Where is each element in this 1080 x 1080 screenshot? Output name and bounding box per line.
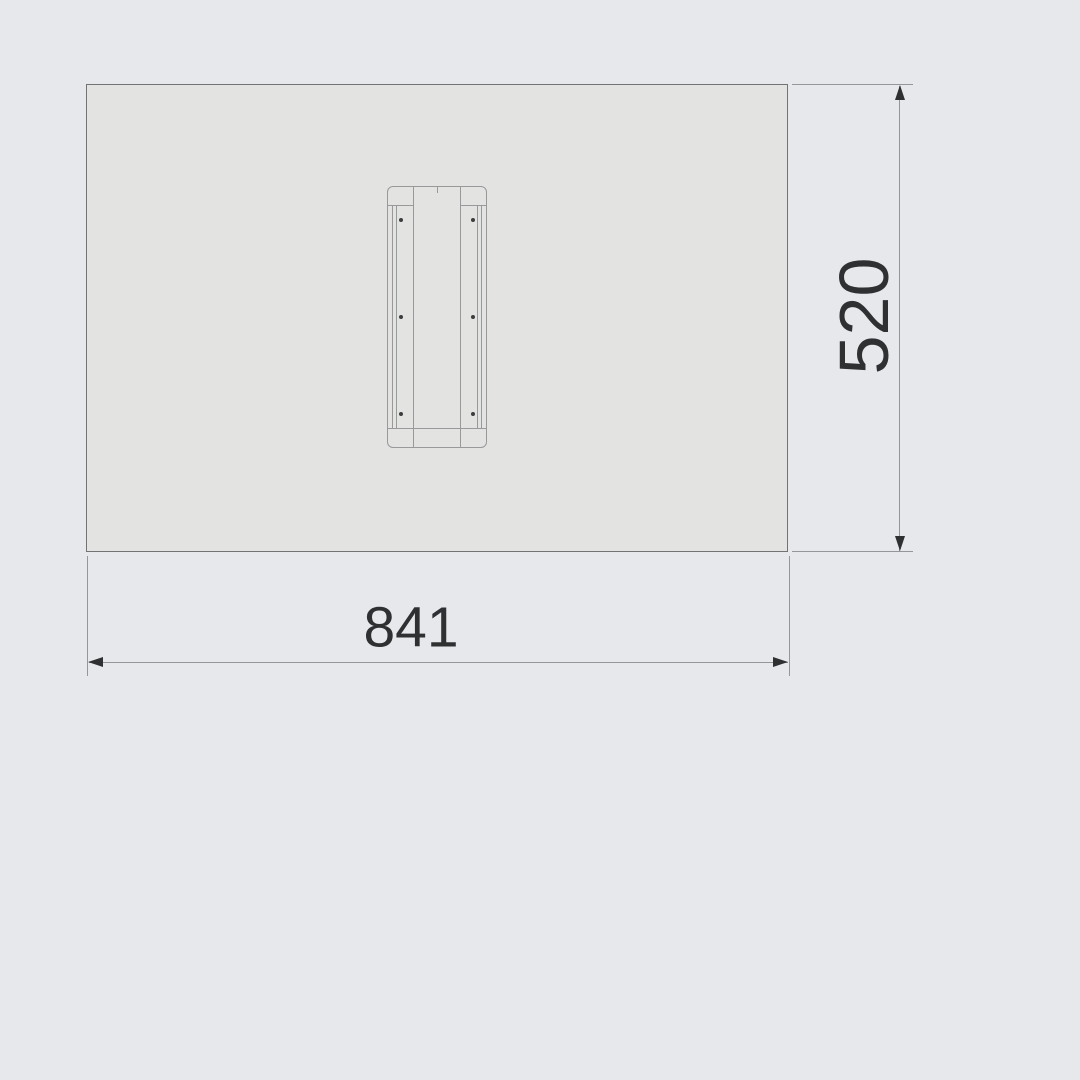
arrow-left-icon (88, 657, 103, 667)
width-ext-line-right (789, 556, 790, 676)
screw-hole-dot (399, 315, 403, 319)
height-ext-line-bottom (792, 551, 913, 552)
screw-hole-dot (471, 315, 475, 319)
technical-drawing-canvas: 520 841 (0, 0, 1080, 1080)
screw-hole-dot (471, 412, 475, 416)
screw-hole-dot (471, 218, 475, 222)
arrow-up-icon (895, 85, 905, 100)
arrow-right-icon (773, 657, 788, 667)
screw-hole-dot (399, 218, 403, 222)
height-dimension-label: 520 (829, 258, 899, 375)
width-dimension-line (89, 662, 788, 663)
screw-hole-dot (399, 412, 403, 416)
width-dimension-label: 841 (363, 600, 458, 657)
center-bracket (387, 186, 487, 448)
arrow-down-icon (895, 536, 905, 551)
